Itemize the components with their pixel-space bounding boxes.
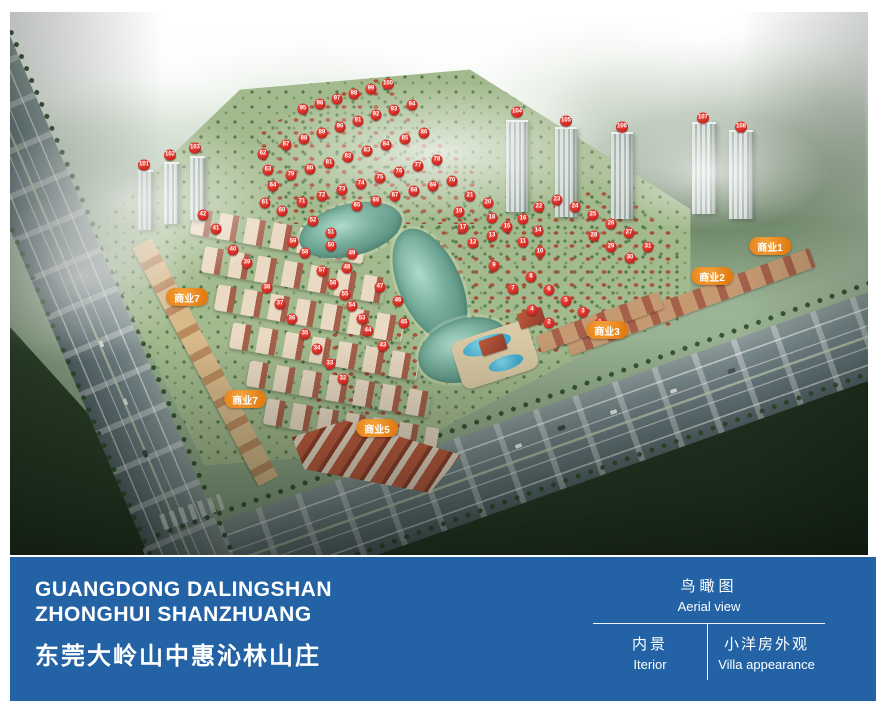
- caption-cells: 内景 Iterior 小洋房外观 Villa appearance: [593, 624, 825, 680]
- brochure-page: 1009998979695949392919089888786858483828…: [0, 0, 882, 701]
- aerial-view-image: [10, 12, 868, 555]
- caption-cell-interior: 内景 Iterior: [593, 624, 707, 680]
- project-title-en-line1: GUANGDONG DALINGSHAN: [35, 577, 332, 602]
- highrise-tower: [164, 162, 179, 224]
- caption-villa-cn: 小洋房外观: [708, 633, 825, 654]
- highrise-tower: [692, 122, 716, 214]
- caption-main-cn: 鸟瞰图: [593, 575, 825, 596]
- project-title-en-line2: ZHONGHUI SHANZHUANG: [35, 602, 332, 627]
- highrise-tower: [506, 120, 528, 212]
- project-title: GUANGDONG DALINGSHAN ZHONGHUI SHANZHUANG…: [35, 577, 332, 671]
- caption-villa-en: Villa appearance: [708, 657, 825, 672]
- project-title-cn: 东莞大岭山中惠沁林山庄: [35, 636, 332, 671]
- caption-main-en: Aerial view: [593, 599, 825, 614]
- caption-panel: 鸟瞰图 Aerial view 内景 Iterior 小洋房外观 Villa a…: [593, 575, 825, 680]
- highrise-tower: [555, 127, 577, 217]
- title-banner: GUANGDONG DALINGSHAN ZHONGHUI SHANZHUANG…: [10, 557, 876, 701]
- caption-cell-villa: 小洋房外观 Villa appearance: [707, 624, 825, 680]
- caption-interior-en: Iterior: [593, 657, 707, 672]
- highrise-tower: [138, 170, 153, 230]
- caption-interior-cn: 内景: [593, 633, 707, 654]
- highrise-tower: [190, 156, 205, 220]
- highrise-tower: [729, 130, 753, 219]
- highrise-tower: [611, 132, 633, 219]
